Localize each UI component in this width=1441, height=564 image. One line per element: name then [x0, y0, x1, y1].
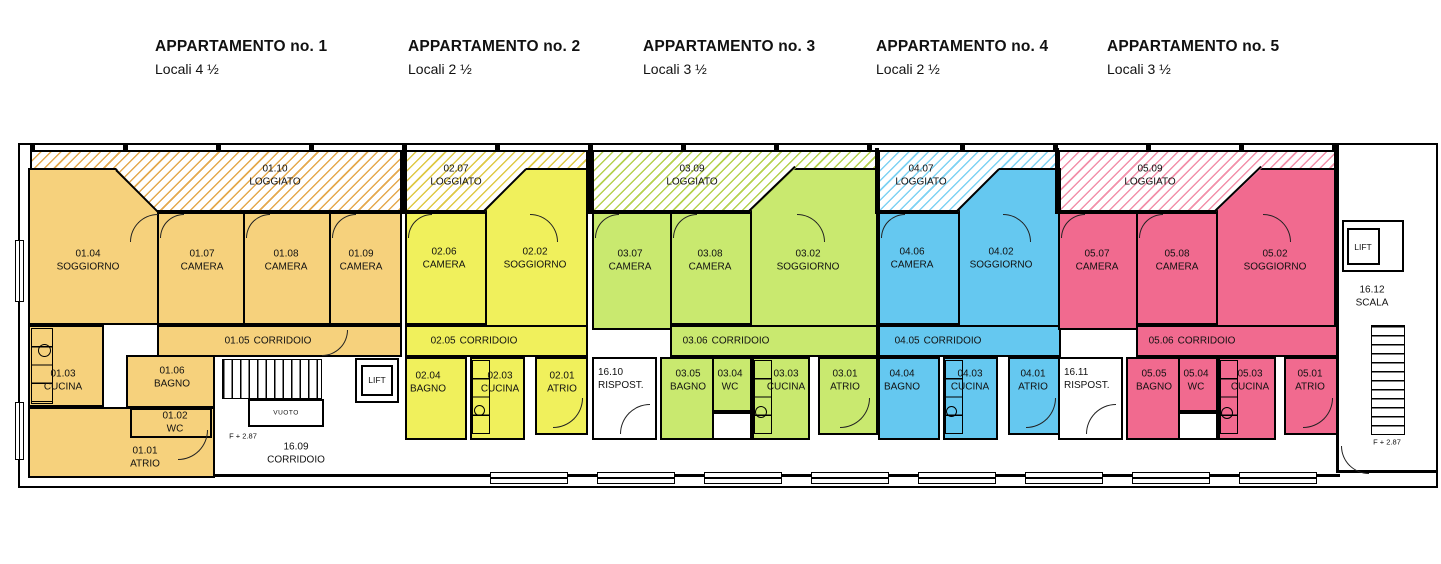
label-ripostiglio-right: 16.11RISPOST.	[1064, 366, 1110, 392]
shaft-box-apt3	[712, 412, 752, 440]
label-room: 04.03CUCINA	[951, 369, 989, 394]
window-west-1	[15, 240, 24, 302]
label-room: 05.07CAMERA	[1076, 249, 1119, 274]
wall-stair-core-left	[1336, 143, 1339, 473]
sink-apt4	[946, 406, 957, 417]
stairs-main	[222, 359, 322, 399]
label-lift-left: LIFT	[368, 375, 385, 385]
label-ripostiglio-left: 16.10RISPOST.	[598, 366, 644, 392]
room-02-04-bagno	[405, 357, 467, 440]
label-room: 05.04WC	[1183, 369, 1208, 394]
label-room: 03.01ATRIO	[830, 369, 860, 394]
label-room: 03.03CUCINA	[767, 369, 805, 394]
window-west-2	[15, 402, 24, 460]
label-room: 03.04WC	[717, 369, 742, 394]
label-room: 04.02SOGGIORNO	[970, 247, 1033, 272]
label-room: 04.04BAGNO	[884, 369, 920, 394]
label-room: 02.04BAGNO	[410, 371, 446, 396]
label-lift-right: LIFT	[1354, 242, 1371, 252]
floor-plan: 01.10LOGGIATO 01.04SOGGIORNO 01.07CAMERA…	[0, 0, 1441, 564]
label-room: 05.02SOGGIORNO	[1244, 249, 1307, 274]
window-south-6	[1025, 472, 1103, 484]
wall-divider-apt4-5	[1055, 148, 1059, 214]
label-room: 05.05BAGNO	[1136, 369, 1172, 394]
label-room: 03.02SOGGIORNO	[777, 249, 840, 274]
label-room: 01.04SOGGIORNO	[57, 249, 120, 274]
label-room: 03.07CAMERA	[609, 249, 652, 274]
facade-pillar-stubs	[30, 143, 1336, 150]
window-south-7	[1132, 472, 1210, 484]
label-room: 05.01ATRIO	[1295, 369, 1325, 394]
label-room: 03.05BAGNO	[670, 369, 706, 394]
label-room: 04.06CAMERA	[891, 247, 934, 272]
label-room: 05.09LOGGIATO	[1124, 164, 1175, 189]
label-level-left: F + 2.87	[229, 432, 257, 441]
label-room: 01.08CAMERA	[265, 249, 308, 274]
label-room: 01.10LOGGIATO	[249, 164, 300, 189]
wall-divider-apt1-2	[402, 148, 406, 214]
label-room: 04.07LOGGIATO	[895, 164, 946, 189]
window-south-2	[597, 472, 675, 484]
wall-stair-core-bottom	[1336, 470, 1438, 473]
window-south-5	[918, 472, 996, 484]
sink-apt3	[755, 406, 767, 418]
label-level-right: F + 2.87	[1373, 438, 1401, 447]
sink-apt5	[1221, 407, 1233, 419]
label-room: 04.01ATRIO	[1018, 369, 1048, 394]
shaft-box-apt5	[1178, 412, 1218, 440]
wall-divider-apt2-3	[588, 148, 592, 214]
label-scala: 16.12SCALA	[1356, 285, 1389, 310]
label-room: 02.03CUCINA	[481, 371, 519, 396]
label-room: 02.07LOGGIATO	[430, 164, 481, 189]
label-room: 01.07CAMERA	[181, 249, 224, 274]
window-south-4	[811, 472, 889, 484]
floor-plan-page: { "headers": [ {"title": "APPARTAMENTO n…	[0, 0, 1441, 564]
label-room: 03.06CORRIDOIO	[681, 336, 772, 347]
sink-apt2	[474, 405, 485, 416]
label-room: 03.09LOGGIATO	[666, 164, 717, 189]
label-room: 05.03CUCINA	[1231, 369, 1269, 394]
label-room: 03.08CAMERA	[689, 249, 732, 274]
label-room: 01.06BAGNO	[154, 366, 190, 391]
window-south-8	[1239, 472, 1317, 484]
wall-divider-apt3-4	[875, 148, 879, 214]
label-corridoio-common: 16.09CORRIDOIO	[267, 442, 325, 467]
label-room: 04.05CORRIDOIO	[893, 336, 984, 347]
label-room: 05.08CAMERA	[1156, 249, 1199, 274]
label-vuoto: VUOTO	[273, 410, 299, 417]
label-room: 02.01ATRIO	[547, 371, 577, 396]
label-room: 01.03CUCINA	[44, 369, 82, 394]
label-room: 02.02SOGGIORNO	[504, 247, 567, 272]
label-room: 02.06CAMERA	[423, 247, 466, 272]
label-room: 01.09CAMERA	[340, 249, 383, 274]
label-room: 05.06CORRIDOIO	[1147, 336, 1238, 347]
sink-apt1	[38, 344, 51, 357]
label-room: 01.05CORRIDOIO	[223, 336, 314, 347]
window-south-3	[704, 472, 782, 484]
label-room: 01.01ATRIO	[130, 446, 160, 471]
window-south-1	[490, 472, 568, 484]
label-room: 02.05CORRIDOIO	[429, 336, 520, 347]
label-room: 01.02WC	[162, 411, 187, 436]
stairs-scala	[1371, 325, 1405, 435]
